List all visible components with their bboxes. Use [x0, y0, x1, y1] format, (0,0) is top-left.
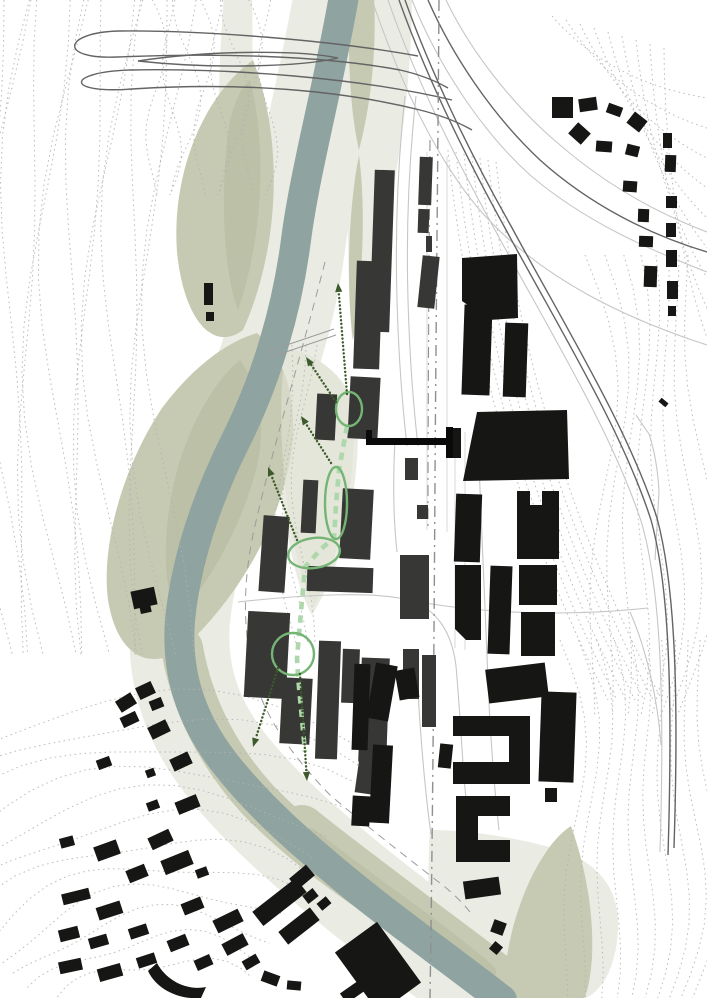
building: [668, 306, 676, 316]
building: [418, 157, 433, 205]
building: [538, 691, 576, 782]
building: [596, 140, 613, 152]
building: [417, 505, 428, 519]
building: [204, 283, 213, 305]
building: [454, 494, 482, 563]
building: [400, 555, 429, 619]
building: [418, 209, 430, 233]
section-marker-bar: [446, 427, 453, 458]
building: [301, 480, 319, 534]
building: [638, 209, 649, 222]
building: [644, 266, 658, 287]
building: [545, 788, 557, 802]
building: [521, 612, 555, 656]
building: [666, 250, 677, 267]
building: [307, 566, 374, 593]
building: [663, 133, 672, 148]
building: [578, 97, 598, 112]
building: [519, 565, 557, 605]
building: [455, 565, 481, 640]
building: [623, 181, 638, 193]
building: [287, 980, 302, 990]
building: [405, 458, 418, 480]
building: [352, 664, 371, 751]
building: [353, 261, 383, 370]
building: [347, 376, 380, 439]
building: [315, 641, 341, 760]
site-plan-svg: [0, 0, 707, 998]
building: [666, 223, 676, 237]
building: [667, 281, 678, 299]
building: [666, 196, 677, 208]
building: [487, 566, 512, 655]
building: [438, 743, 453, 768]
building: [503, 323, 529, 398]
building: [279, 677, 312, 744]
building: [665, 155, 677, 172]
building: [315, 394, 337, 441]
building: [351, 796, 371, 827]
section-marker-bar: [366, 438, 448, 445]
section-marker-bar: [366, 430, 372, 445]
building: [463, 410, 569, 481]
building: [639, 236, 653, 247]
building: [426, 236, 432, 252]
building: [206, 312, 214, 321]
building: [552, 97, 573, 118]
building: [258, 515, 289, 593]
building: [369, 745, 393, 824]
building: [485, 662, 549, 703]
site-plan-map: [0, 0, 707, 998]
building: [422, 655, 436, 727]
